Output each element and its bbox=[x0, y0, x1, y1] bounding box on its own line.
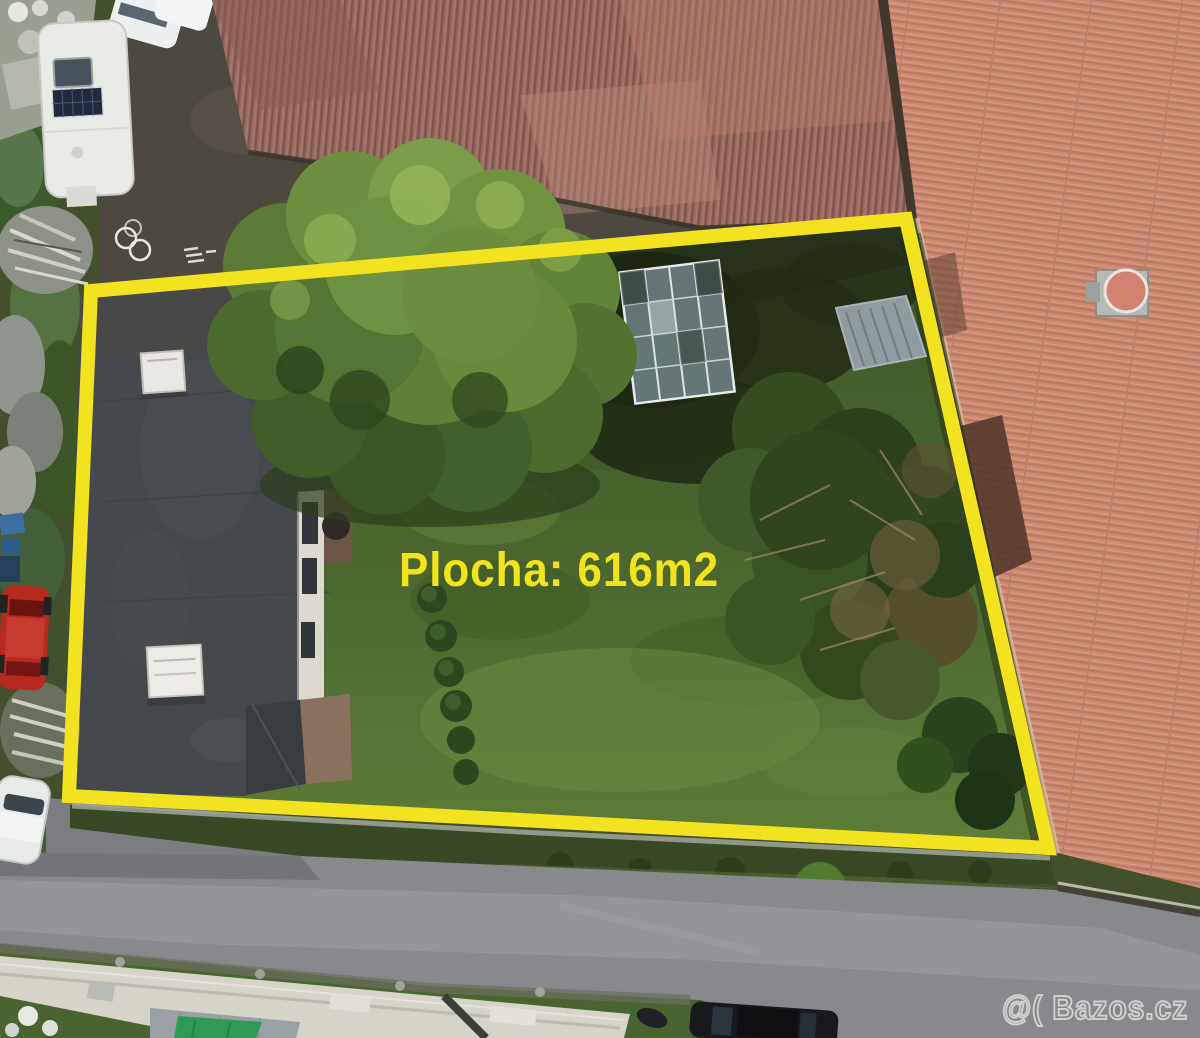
caravan bbox=[37, 20, 135, 208]
red-car bbox=[0, 585, 53, 692]
aerial-photo: Plocha: 616m2 @( Bazos.cz bbox=[0, 0, 1200, 1038]
junk-pile bbox=[0, 206, 93, 294]
house-facade bbox=[298, 490, 324, 700]
greenhouse bbox=[619, 260, 734, 403]
roof-vent-box-2 bbox=[145, 645, 206, 707]
watermark-text: @( Bazos.cz bbox=[1002, 989, 1188, 1026]
brick-patio bbox=[300, 694, 352, 784]
caravan-skylight bbox=[53, 58, 92, 88]
roof-vent-box-1 bbox=[139, 350, 188, 399]
solar-panel bbox=[52, 87, 103, 118]
chimney bbox=[1086, 270, 1148, 316]
gable-roof bbox=[246, 700, 306, 795]
area-label: Plocha: 616m2 bbox=[399, 544, 719, 597]
